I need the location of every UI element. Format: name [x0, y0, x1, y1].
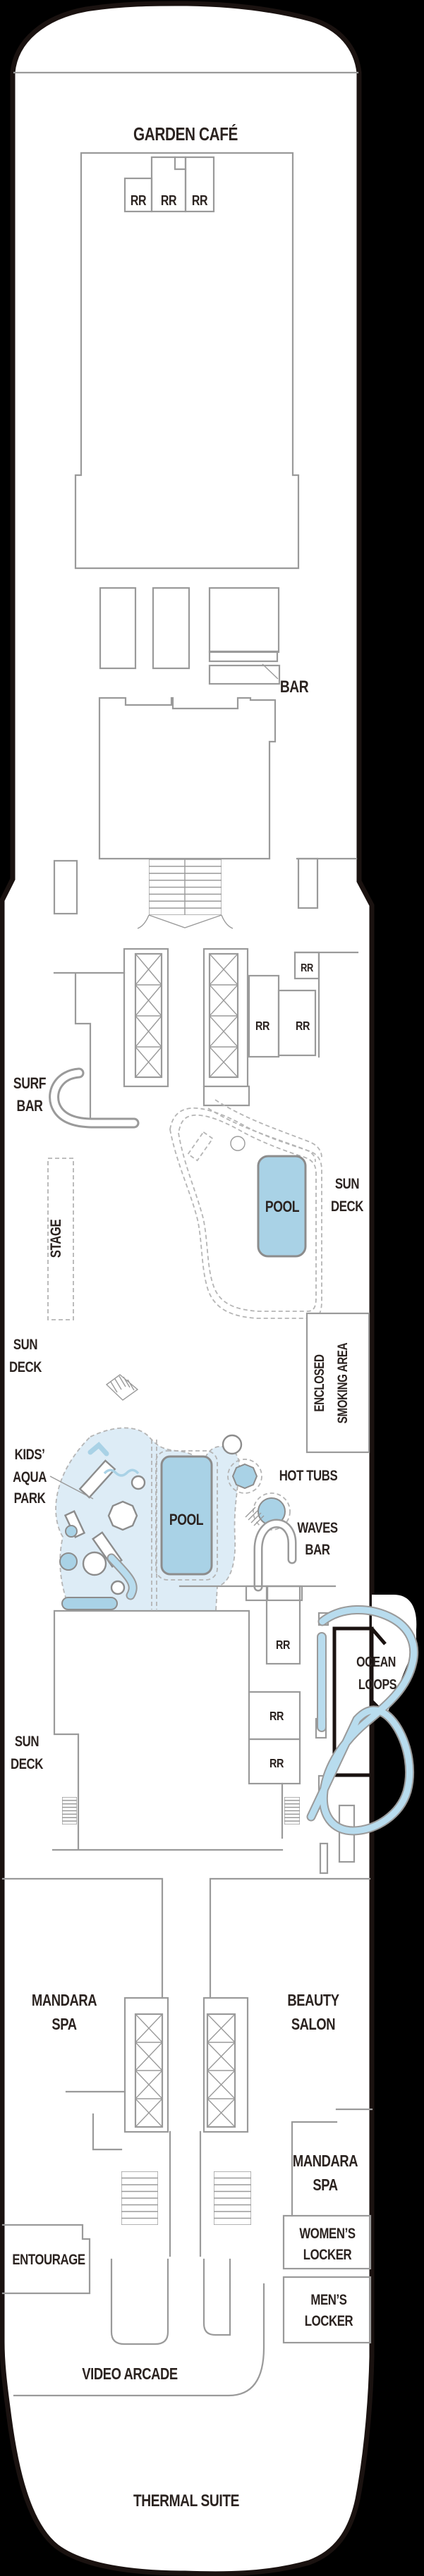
womens-locker-label: WOMEN’S	[299, 2226, 355, 2242]
restroom-label: RR	[131, 192, 147, 208]
upper-pool-label: POOL	[265, 1198, 299, 1215]
smoking-area-label: SMOKING AREA	[334, 1343, 350, 1423]
garden-cafe-label: GARDEN CAFÉ	[133, 123, 238, 145]
sun-deck-label: DECK	[11, 1756, 44, 1772]
restroom-label: RR	[255, 1019, 270, 1034]
womens-locker-label: LOCKER	[303, 2247, 352, 2263]
mens-locker-label: MEN’S	[310, 2292, 346, 2308]
surf-bar-label: BAR	[17, 1098, 43, 1115]
ocean-loops-label: OCEAN	[356, 1654, 396, 1669]
surf-bar-label: SURF	[13, 1075, 47, 1092]
mandara-spa-label: MANDARA	[293, 2152, 358, 2170]
restroom-label: RR	[276, 1638, 291, 1652]
sun-deck-label: SUN	[335, 1176, 359, 1192]
kids-aqua-park-label: PARK	[14, 1490, 46, 1507]
sun-deck-label: DECK	[331, 1198, 364, 1215]
video-arcade-label: VIDEO ARCADE	[82, 2365, 178, 2383]
restroom-label: RR	[269, 1757, 284, 1771]
deck-plan-page: GARDEN CAFÉ RR RR RR BAR RR RR RR SURF B…	[0, 0, 424, 2576]
restroom-label: RR	[296, 1019, 310, 1034]
deck-plan-svg: GARDEN CAFÉ RR RR RR BAR RR RR RR SURF B…	[0, 0, 424, 2576]
waves-bar-label: BAR	[305, 1542, 330, 1558]
beauty-salon-label: BEAUTY	[287, 1992, 339, 2009]
smoking-area-label: ENCLOSED	[311, 1354, 327, 1411]
sun-deck-label: SUN	[15, 1734, 39, 1750]
hot-tubs-label: HOT TUBS	[279, 1468, 338, 1484]
waves-bar-label: WAVES	[297, 1520, 337, 1536]
restroom-label: RR	[161, 192, 177, 208]
kids-aqua-park-label: KIDS’	[15, 1447, 45, 1463]
beauty-salon-label: SALON	[291, 2016, 335, 2033]
restroom-label: RR	[269, 1710, 284, 1724]
restroom-label: RR	[301, 962, 314, 975]
sun-deck-label: SUN	[13, 1337, 37, 1353]
mens-locker-label: LOCKER	[305, 2313, 353, 2329]
kids-aqua-park-label: AQUA	[13, 1469, 47, 1485]
main-pool-label: POOL	[169, 1511, 203, 1528]
stage-label: STAGE	[48, 1220, 64, 1258]
mandara-spa-label: SPA	[52, 2016, 77, 2033]
ocean-loops-label: LOOPS	[358, 1676, 396, 1692]
mandara-spa-label: SPA	[313, 2176, 338, 2194]
restroom-label: RR	[192, 192, 208, 208]
entourage-label: ENTOURAGE	[12, 2252, 85, 2268]
mandara-spa-label: MANDARA	[32, 1992, 97, 2009]
sun-deck-label: DECK	[9, 1359, 42, 1375]
bar-label: BAR	[280, 677, 309, 697]
thermal-suite-label: THERMAL SUITE	[133, 2491, 239, 2510]
